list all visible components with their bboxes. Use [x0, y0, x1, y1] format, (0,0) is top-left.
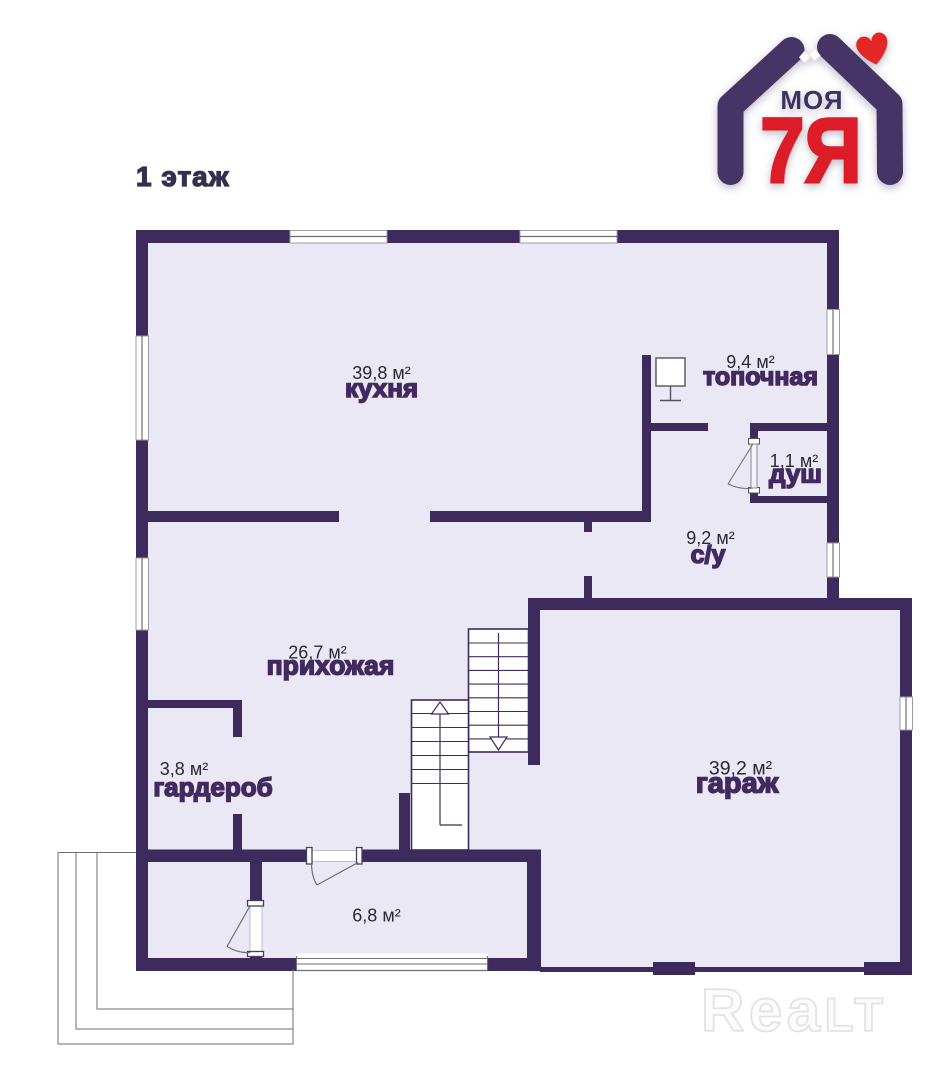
svg-text:с/у: с/у [691, 541, 726, 569]
svg-text:гардероб: гардероб [153, 772, 272, 802]
svg-text:6,8 м²: 6,8 м² [352, 906, 400, 926]
svg-text:кухня: кухня [345, 373, 418, 403]
svg-text:7Я: 7Я [760, 100, 861, 203]
svg-text:гараж: гараж [696, 768, 779, 800]
svg-text:душ: душ [769, 459, 822, 489]
svg-text:топочная: топочная [703, 363, 818, 391]
svg-text:1 этаж: 1 этаж [136, 161, 230, 192]
svg-text:прихожая: прихожая [267, 651, 395, 681]
svg-text:ReaLT: ReaLT [701, 977, 888, 1044]
